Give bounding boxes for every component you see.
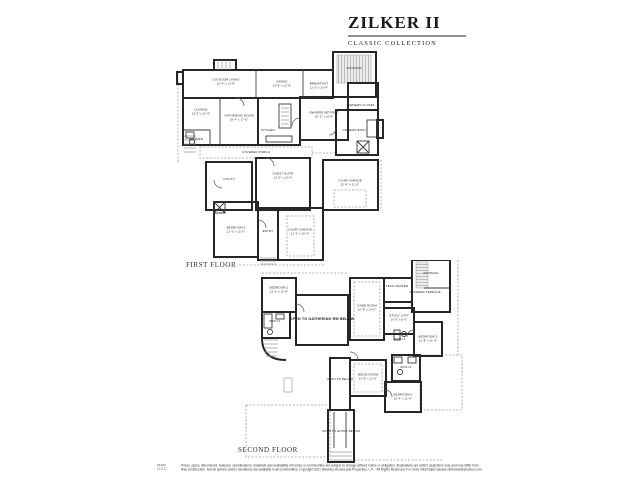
room-label: STORAGE [346,67,361,71]
room-label: ENTRY [263,230,274,234]
room-label: GUEST SUITE13'-0" x 12'-4" [273,172,294,179]
room-label: OPEN TO BELOW [327,378,353,382]
room-label: DINING13'-6" x 12'-8" [273,80,291,87]
first-floor-plan: OUTDOOR LIVING21'-4" x 12'-8"DINING13'-6… [148,50,388,268]
room-label: BATH 2 [270,320,281,324]
second-floor-label: SECOND FLOOR [237,446,299,454]
disclaimer-line-2: final construction. Not all options and/… [181,468,621,472]
plan-title: ZILKER II [348,13,478,33]
room-label: STORAGE [423,272,438,276]
title-block: ZILKER II CLASSIC COLLECTION [348,13,478,47]
room-label: POWDER [189,138,203,142]
room-label: 2-CAR GARAGE21'-0" x 20'-4" [288,228,312,235]
room-label: BEDROOM 312'-8" x 11'-4" [419,335,438,342]
room-label: BEDROOM 213'-0" x 11'-8" [270,286,289,293]
collection-subtitle: CLASSIC COLLECTION [348,40,478,47]
room-label: OWNERS BATH [342,129,365,133]
room-label: TECH CENTER [386,285,408,289]
room-label: OWNERS RETREAT16'-2" x 14'-8" [309,112,339,119]
room-label: COVERED PORCH [242,151,270,155]
room-label: LOUNGE12'-0" x 11'-6" [192,109,210,116]
room-label: BREAKFAST12'-0" x 10'-4" [310,82,329,89]
room-label: OPEN TO ENTRY BELOW [322,430,360,434]
plan-code-date: 12.6.21 [157,467,167,470]
second-floor-plan: BEDROOM 213'-0" x 11'-8"BATH 2OPEN TO GA… [230,260,470,465]
room-label: UTILITY [223,178,235,182]
room-label: GAME ROOM16'-8" x 14'-0" [357,304,377,311]
room-label: COVERED TERRACE [409,291,440,295]
room-label: STUDY LOFT10'-0" x 8'-6" [389,314,409,321]
room-label: BATH 4 [400,366,411,370]
room-label: OUTDOOR LIVING21'-4" x 12'-8" [212,78,239,85]
room-label: OPEN TO GATHERING RM BELOW [290,318,355,323]
floor-plan-sheet: ZILKER II CLASSIC COLLECTION [0,0,640,480]
room-label: BEDROOM 412'-4" x 11'-0" [394,393,413,400]
room-label: BATH 3 [394,338,405,342]
room-label: KITCHEN [261,129,275,133]
room-label: BEDROOM 512'-0" x 11'-0" [227,226,246,233]
room-label: GATHERING ROOM19'-4" x 17'-0" [224,114,253,121]
legal-disclaimer: Prices, plans, dimensions, features, spe… [181,464,621,472]
title-rule [348,35,466,37]
first-floor-drawing [148,50,388,268]
room-label: MEDIA ROOM13'-8" x 12'-0" [358,373,379,380]
overhang-lines [178,70,381,265]
room-label: 3-CAR GARAGE32'-8" x 21'-0" [338,179,362,186]
room-label: OWNERS CLOSET [347,104,375,108]
plan-code: 6940D 12.6.21 [157,464,167,471]
